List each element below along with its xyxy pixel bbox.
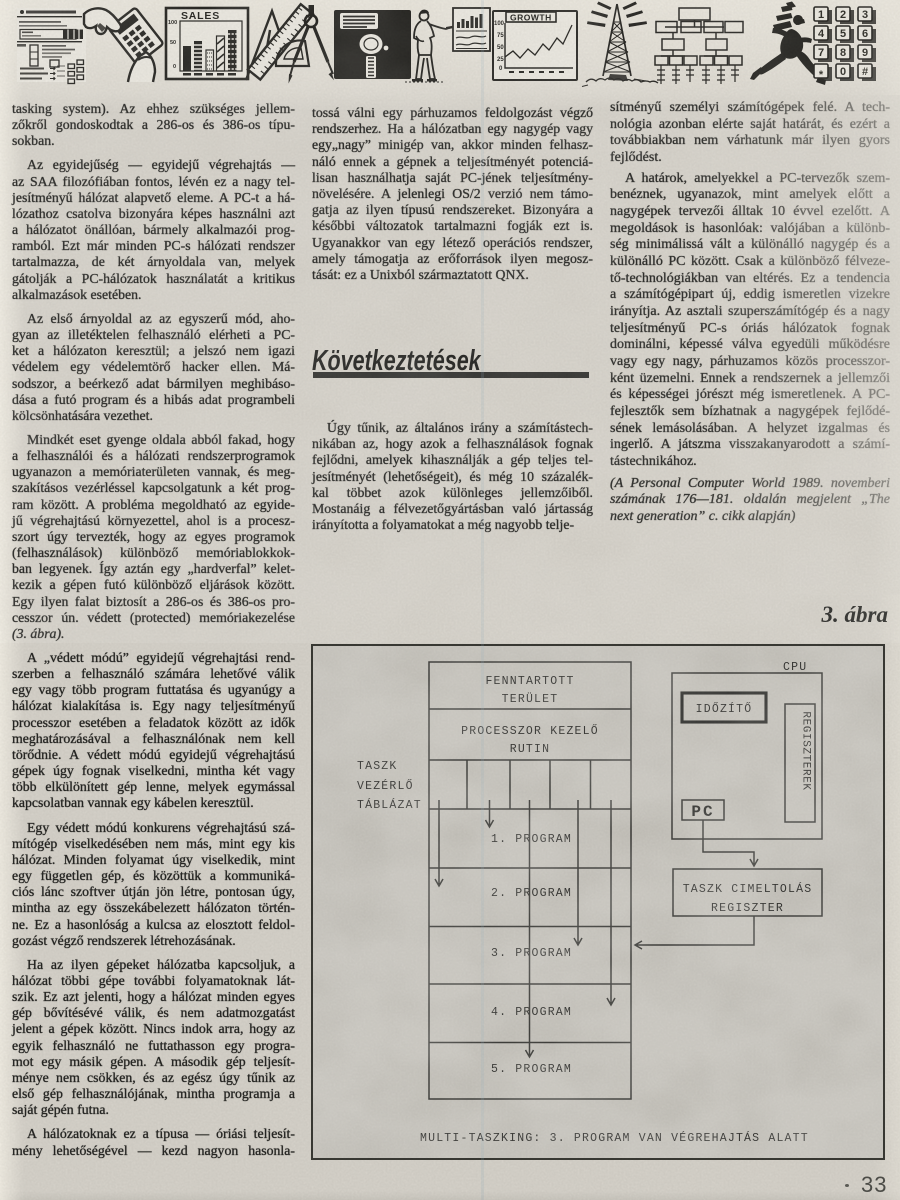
svg-text:0: 0 (173, 64, 176, 70)
svg-text:3. PROGRAM: 3. PROGRAM (491, 947, 572, 960)
svg-text:TASZK: TASZK (357, 760, 398, 773)
svg-text:4. PROGRAM: 4. PROGRAM (491, 1006, 572, 1019)
svg-text:50: 50 (170, 40, 176, 46)
svg-text:SALES: SALES (181, 10, 220, 22)
svg-text:5: 5 (840, 28, 846, 40)
svg-text:5. PROGRAM: 5. PROGRAM (491, 1063, 572, 1076)
svg-text:TERÜLET: TERÜLET (502, 693, 559, 706)
svg-text:7: 7 (818, 47, 824, 59)
svg-text:100: 100 (168, 20, 177, 26)
svg-text:REGISZTEREK: REGISZTEREK (800, 711, 812, 790)
svg-text:9: 9 (862, 47, 868, 59)
svg-text:IDŐZÍTŐ: IDŐZÍTŐ (696, 702, 753, 716)
svg-text:0: 0 (840, 66, 846, 78)
svg-text:2: 2 (840, 9, 846, 21)
svg-text:FENNTARTOTT: FENNTARTOTT (485, 675, 574, 688)
svg-text:GROWTH: GROWTH (510, 13, 552, 23)
svg-text:8: 8 (840, 47, 846, 59)
svg-text:CPU: CPU (783, 661, 807, 674)
svg-text:TASZK CIMELTOLÁS: TASZK CIMELTOLÁS (683, 882, 813, 896)
svg-text:VEZÉRLŐ: VEZÉRLŐ (357, 779, 414, 793)
svg-text:50: 50 (497, 45, 504, 51)
svg-text:RUTIN: RUTIN (510, 743, 551, 756)
svg-text:MULTI-TASZKING: 3. PROGRAM VA: MULTI-TASZKING: 3. PROGRAM VAN VÉGREHAJT… (420, 1131, 809, 1145)
svg-text:#: # (862, 66, 868, 78)
svg-text:3: 3 (862, 9, 868, 21)
svg-text:100: 100 (494, 21, 505, 27)
svg-text:TÁBLÁZAT: TÁBLÁZAT (357, 798, 422, 812)
svg-text:1: 1 (818, 9, 824, 21)
svg-text:PC: PC (691, 803, 714, 821)
svg-text:1. PROGRAM: 1. PROGRAM (491, 833, 572, 846)
svg-text:4: 4 (818, 28, 825, 40)
svg-text:75: 75 (497, 33, 504, 39)
svg-text:25: 25 (497, 57, 504, 63)
svg-text:2. PROGRAM: 2. PROGRAM (491, 887, 572, 900)
svg-text:REGISZTER: REGISZTER (711, 902, 784, 915)
svg-text:*: * (819, 69, 824, 81)
svg-text:6: 6 (862, 28, 868, 40)
